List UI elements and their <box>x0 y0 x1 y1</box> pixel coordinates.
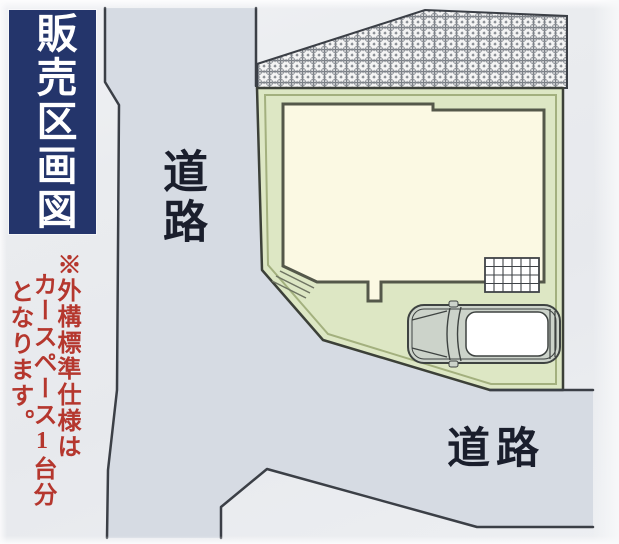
note-line-1: ※外構標準仕様は <box>54 252 78 460</box>
road-label-bottom: 道路 <box>447 428 545 471</box>
note-line-2: カースペース1台分 <box>30 272 54 508</box>
sales-plot-plan: 販売区画図 ※外構標準仕様は カースペース1台分 となります。 道路 道路 <box>0 0 619 544</box>
grid-terrace <box>485 258 539 292</box>
road-label-left: 道路 <box>158 148 203 248</box>
car-illustration <box>408 301 560 367</box>
title-banner: 販売区画図 <box>9 10 96 234</box>
neighbor-parcel-hatch-area <box>257 10 567 88</box>
note-line-3: となります。 <box>7 279 31 435</box>
plan-title: 販売区画図 <box>32 12 73 232</box>
